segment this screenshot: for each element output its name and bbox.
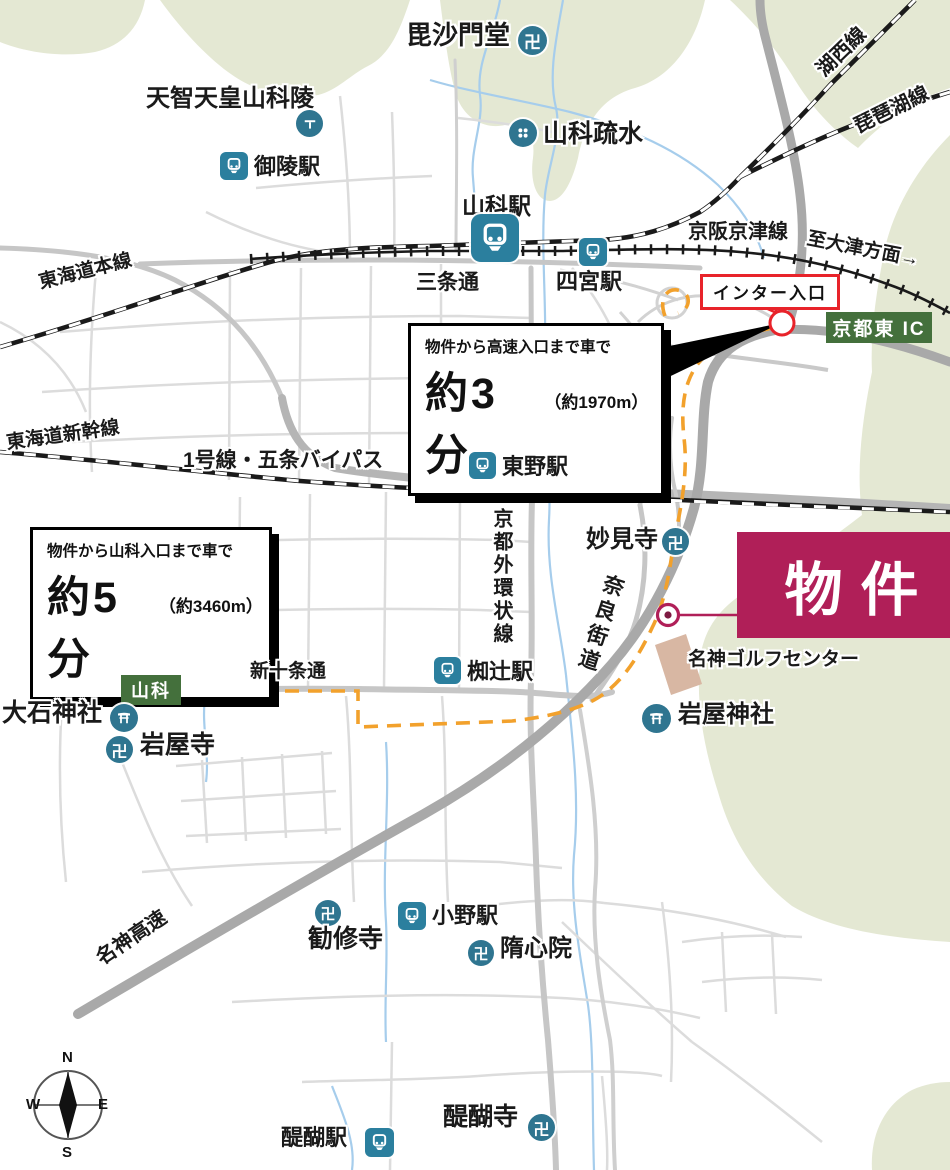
- callout-yamashina-time: 約5分: [47, 563, 157, 687]
- callout-yamashina-desc: 物件から山科入口まで車で: [47, 539, 255, 561]
- label-ono-station: 小野駅: [432, 904, 498, 927]
- manji-glyph: 卍: [524, 28, 541, 53]
- compass-e: E: [98, 1096, 108, 1113]
- temple-icon: 卍: [106, 736, 133, 763]
- label-daigo-station: 醍醐駅: [281, 1126, 347, 1149]
- station-icon: [220, 152, 248, 180]
- callout-highway-dist: （約1970m）: [544, 388, 647, 413]
- compass-s: S: [62, 1144, 72, 1161]
- compass-w: W: [26, 1096, 40, 1113]
- label-keihan-keishin-line: 京阪京津線: [688, 222, 788, 243]
- label-shinomiya-station: 四宮駅: [556, 270, 622, 293]
- station-icon: [398, 902, 426, 930]
- interchange-entrance-label: インター入口: [700, 274, 840, 310]
- manji-glyph: 卍: [533, 1116, 549, 1140]
- manji-glyph: 卍: [473, 943, 488, 964]
- temple-icon: 卍: [518, 26, 547, 55]
- callout-yamashina-dist: （約3460m）: [159, 592, 255, 617]
- label-higashino-station: 東野駅: [502, 455, 568, 478]
- manji-glyph: 卍: [320, 903, 335, 924]
- label-meishin-golf-center: 名神ゴルフセンター: [688, 650, 859, 670]
- label-daigoji: 醍醐寺: [443, 1104, 518, 1130]
- station-icon: [434, 657, 461, 684]
- label-shinjujo-dori: 新十条通: [250, 662, 326, 682]
- callout-highway-desc: 物件から高速入口まで車で: [425, 335, 647, 357]
- manji-glyph: 卍: [111, 738, 127, 762]
- kyoto-higashi-ic-badge: 京都東 IC: [826, 312, 932, 343]
- station-icon-large: [471, 214, 519, 262]
- label-misasagi-station: 御陵駅: [254, 155, 320, 178]
- label-myokenji: 妙見寺: [586, 527, 658, 552]
- aqueduct-icon: [509, 119, 537, 147]
- label-oishi-shrine: 大石神社: [2, 700, 102, 726]
- label-zuishinin: 隋心院: [500, 936, 572, 961]
- label-route1-gojo-bypass: 1号線・五条バイパス: [183, 450, 383, 472]
- station-icon: [469, 452, 496, 479]
- yamashina-entrance-badge: 山科: [121, 675, 181, 705]
- label-iwaya-shrine: 岩屋神社: [678, 702, 774, 727]
- station-icon: [365, 1128, 394, 1157]
- label-iwayaji: 岩屋寺: [140, 732, 215, 758]
- property-box: 物件: [737, 532, 950, 638]
- temple-icon: 卍: [315, 900, 341, 926]
- compass-n: N: [62, 1049, 73, 1066]
- shrine-icon: [642, 704, 671, 733]
- temple-icon: 卍: [528, 1114, 555, 1141]
- label-kanshuji: 勧修寺: [308, 926, 383, 952]
- label-tenji-tomb: 天智天皇山科陵: [146, 86, 314, 111]
- label-yamashina-sosui: 山科疏水: [543, 121, 643, 147]
- manji-glyph: 卍: [667, 530, 683, 554]
- temple-icon: 卍: [662, 528, 689, 555]
- tomb-icon: [296, 110, 323, 137]
- compass-icon: [34, 1071, 102, 1139]
- temple-icon: 卍: [468, 940, 494, 966]
- route-map: 毘沙門堂 卍 天智天皇山科陵 山科疏水 御陵駅 山科駅 四宮駅 京阪京津線 至大…: [0, 0, 950, 1170]
- label-nagitsuji-station: 椥辻駅: [467, 660, 533, 683]
- label-bishamondo: 毘沙門堂: [406, 22, 510, 49]
- label-kyoto-gaikan: 京都外環状線: [490, 508, 511, 646]
- shrine-icon: [110, 704, 138, 732]
- label-sanjo-dori: 三条通: [416, 272, 479, 294]
- station-icon: [579, 238, 607, 266]
- callout-highway-pointer: [650, 323, 781, 386]
